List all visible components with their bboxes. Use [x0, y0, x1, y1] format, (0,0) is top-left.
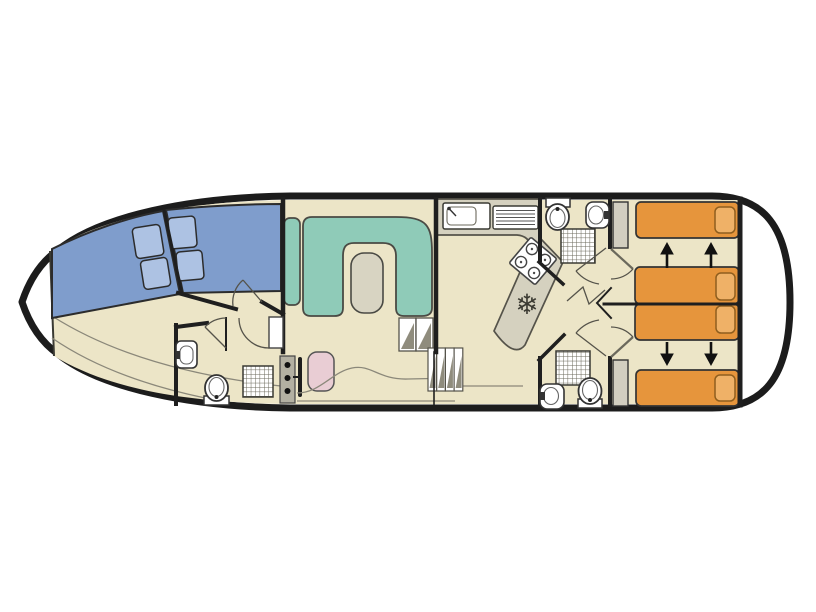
- washbasin: [176, 341, 197, 368]
- drainboard: [493, 206, 538, 229]
- washbasin: [586, 202, 609, 228]
- shower-tray: [243, 366, 273, 397]
- stairs-upper-flight: [399, 318, 433, 351]
- bed-pillow: [716, 273, 735, 300]
- boat-floor-plan: ❄: [0, 0, 816, 612]
- toilet: [546, 198, 570, 230]
- wardrobe-bottom: [613, 360, 628, 406]
- saloon: [284, 217, 432, 316]
- steering-wheel: [298, 357, 302, 397]
- wardrobe-top: [613, 202, 628, 248]
- shower-tray: [561, 229, 595, 263]
- toilet: [578, 378, 602, 408]
- bed-pillow: [715, 207, 735, 233]
- bed-pillow: [715, 375, 735, 401]
- console-knob: [285, 362, 291, 368]
- door-leaf-saloon: [269, 317, 283, 348]
- bow-pillow: [140, 257, 171, 290]
- washbasin: [540, 384, 564, 409]
- console-knob: [285, 388, 291, 394]
- sofa-side-cushion: [284, 218, 300, 305]
- floor-plan-svg: ❄: [0, 0, 816, 612]
- fridge-snowflake-icon: ❄: [515, 288, 538, 321]
- bow-pillow: [132, 224, 165, 259]
- toilet: [204, 375, 229, 405]
- console-knob: [285, 375, 291, 381]
- bow-pillow: [176, 250, 204, 281]
- bed-pillow: [716, 306, 735, 333]
- saloon-table: [351, 253, 383, 313]
